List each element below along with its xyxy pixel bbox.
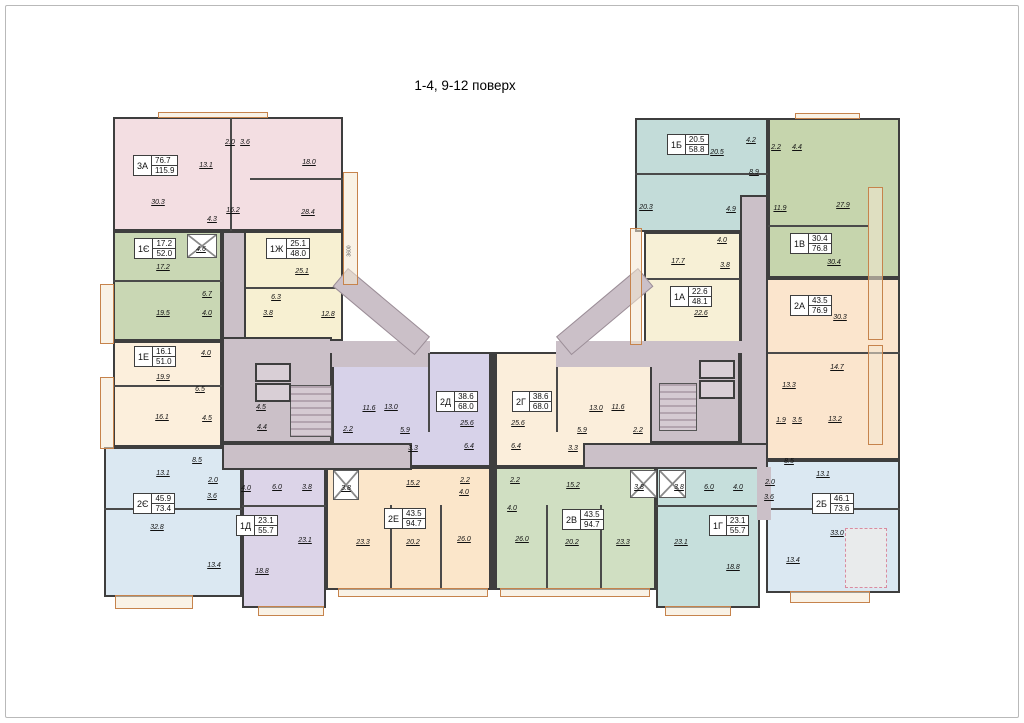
apartment-code: 1Б (668, 135, 686, 154)
corridor-band-right (583, 443, 768, 469)
apartment-label-1zh: 1Ж 25.148.0 (266, 238, 310, 259)
total-area: 115.9 (152, 166, 177, 175)
room-area-label: 2.0 (208, 477, 218, 485)
room-area-label: 14.7 (830, 364, 844, 372)
room-area-label: 20.2 (406, 539, 420, 547)
total-area: 52.0 (153, 249, 175, 258)
balcony (795, 113, 860, 119)
room-area-label: 23.1 (298, 537, 312, 545)
room-area-label: 6.4 (464, 443, 474, 451)
room-area-label: 3.8 (634, 484, 644, 492)
staircase-left (290, 385, 332, 437)
room-area-label: 27.9 (836, 202, 850, 210)
room-area-label: 13.1 (816, 471, 830, 479)
elevator-shaft (699, 360, 735, 379)
apartment-code: 2А (791, 296, 809, 315)
floor-plan: 1-4, 9-12 поверх (0, 0, 1024, 723)
total-area: 68.0 (455, 402, 477, 411)
room-area-label: 3.8 (302, 484, 312, 492)
room-area-label: 33.0 (830, 530, 844, 538)
apartment-label-1b: 1Б 20.558.8 (667, 134, 709, 155)
corridor-entry-left (222, 231, 246, 343)
room-area-label: 4.0 (201, 350, 211, 358)
room-area-label: 13.3 (782, 382, 796, 390)
apartment-label-1d: 1Д 23.155.7 (236, 515, 278, 536)
balcony (868, 345, 883, 445)
room-area-label: 5.9 (577, 427, 587, 435)
room-area-label: 4.0 (507, 505, 517, 513)
balcony (115, 595, 193, 609)
living-area: 23.1 (727, 516, 749, 526)
room-area-label: 6.0 (272, 484, 282, 492)
living-area: 45.9 (152, 494, 174, 504)
elevator-shaft (255, 383, 291, 402)
apartment-code: 1Г (710, 516, 727, 535)
balcony-dashed (845, 528, 887, 588)
total-area: 48.0 (287, 249, 309, 258)
total-area: 76.9 (809, 306, 831, 315)
room-area-label: 11.6 (611, 404, 624, 412)
total-area: 68.0 (530, 402, 552, 411)
room-area-label: 12.8 (321, 311, 335, 319)
balcony (868, 187, 883, 340)
partition-wall (768, 225, 868, 227)
apartment-label-2g: 2Г 38.668.0 (512, 391, 552, 412)
room-area-label: 23.3 (356, 539, 370, 547)
room-area-label: 30.3 (833, 314, 847, 322)
apartment-code: 1В (791, 234, 809, 253)
apartment-code: 3А (134, 156, 152, 175)
balcony (665, 606, 731, 616)
room-area-label: 30.4 (827, 259, 841, 267)
room-area-label: 3.3 (568, 445, 578, 453)
room-area-label: 3.8 (720, 262, 730, 270)
room-area-label: 5.9 (400, 427, 410, 435)
room-area-label: 4.9 (726, 206, 736, 214)
corridor-area-label: 4.5 (256, 404, 266, 412)
room-area-label: 23.1 (674, 539, 688, 547)
room-area-label: 8.5 (192, 457, 202, 465)
room-area-label: 13.4 (207, 562, 221, 570)
apartment-code: 2Є (134, 494, 152, 513)
room-area-label: 11.6 (362, 405, 375, 413)
partition-wall (113, 280, 222, 282)
apartment-label-3a: 3А 76.7115.9 (133, 155, 178, 176)
room-area-label: 17.7 (671, 258, 685, 266)
room-area-label: 4.4 (792, 144, 802, 152)
room-area-label: 6.3 (271, 294, 281, 302)
room-area-label: 13.0 (589, 405, 603, 413)
room-area-label: 6.4 (511, 443, 521, 451)
balcony (343, 172, 358, 285)
living-area: 43.5 (403, 509, 425, 519)
living-area: 17.2 (153, 239, 175, 249)
room-area-label: 4.0 (202, 310, 212, 318)
room-area-label: 3.8 (263, 310, 273, 318)
apartment-label-1v: 1В 30.476.8 (790, 233, 832, 254)
room-area-label: 3.8 (674, 484, 684, 492)
living-area: 38.6 (530, 392, 552, 402)
balcony (100, 377, 114, 449)
total-area: 58.8 (686, 145, 708, 154)
apartment-label-2b: 2Б 46.173.6 (812, 493, 854, 514)
room-area-label: 4.0 (733, 484, 743, 492)
room-area-label: 30.3 (151, 199, 165, 207)
living-area: 43.5 (581, 510, 603, 520)
room-area-label: 4.3 (207, 216, 217, 224)
apartment-label-1g: 1Г 23.155.7 (709, 515, 749, 536)
room-area-label: 8.5 (784, 458, 794, 466)
apartment-code: 2Г (513, 392, 530, 411)
room-area-label: 13.1 (199, 162, 213, 170)
room-area-label: 3.6 (207, 493, 217, 501)
room-area-label: 13.2 (828, 416, 842, 424)
total-area: 51.0 (153, 357, 175, 366)
room-area-label: 6.0 (704, 484, 714, 492)
room-area-label: 18.8 (255, 568, 269, 576)
staircase-right (659, 383, 697, 431)
room-area-label: 16.1 (155, 414, 169, 422)
elevator-shaft (699, 380, 735, 399)
room-area-label: 13.0 (384, 404, 398, 412)
balcony (100, 284, 114, 344)
dimension-label: 3600 (347, 245, 353, 256)
room-area-label: 6.5 (195, 386, 205, 394)
total-area: 73.4 (152, 504, 174, 513)
total-area: 76.8 (809, 244, 831, 253)
room-area-label: 3.6 (240, 139, 250, 147)
living-area: 16.1 (153, 347, 175, 357)
balcony (630, 228, 642, 345)
room-area-label: 4.0 (459, 489, 469, 497)
corridor-area-label: 4.4 (257, 424, 267, 432)
living-area: 46.1 (831, 494, 853, 504)
apartment-label-2a: 2А 43.576.9 (790, 295, 832, 316)
balcony (790, 591, 870, 603)
partition-wall (242, 505, 326, 507)
apartment-label-1a: 1А 22.648.1 (670, 286, 712, 307)
room-area-label: 20.5 (710, 149, 724, 157)
living-area: 20.5 (686, 135, 708, 145)
apartment-label-2d: 2Д 38.668.0 (436, 391, 478, 412)
apartment-code: 1Е (135, 347, 153, 366)
corridor-band-left (222, 443, 412, 470)
room-area-label: 4.2 (746, 137, 756, 145)
apartment-label-2ye: 2Є 45.973.4 (133, 493, 175, 514)
apartment-code: 2Б (813, 494, 831, 513)
room-area-label: 26.0 (515, 536, 529, 544)
room-area-label: 22.6 (694, 310, 708, 318)
living-area: 43.5 (809, 296, 831, 306)
apartment-code: 2Е (385, 509, 403, 528)
room-area-label: 2.2 (510, 477, 520, 485)
room-area-label: 15.2 (406, 480, 420, 488)
room-area-label: 3.3 (408, 445, 418, 453)
apartment-code: 2В (563, 510, 581, 529)
room-area-label: 4.5 (202, 415, 212, 423)
apartment-label-1ye: 1Є 17.252.0 (134, 238, 176, 259)
partition-wall (656, 505, 760, 507)
apartment-code: 1А (671, 287, 689, 306)
total-area: 94.7 (403, 519, 425, 528)
living-area: 30.4 (809, 234, 831, 244)
room-area-label: 28.4 (301, 209, 315, 217)
balcony (338, 588, 488, 597)
room-area-label: 8.9 (749, 169, 759, 177)
apartment-code: 1Д (237, 516, 255, 535)
living-area: 76.7 (152, 156, 177, 166)
room-area-label: 4.0 (241, 485, 251, 493)
total-area: 73.6 (831, 504, 853, 513)
room-area-label: 13.1 (156, 470, 170, 478)
room-area-label: 25.6 (460, 420, 474, 428)
total-area: 48.1 (689, 297, 711, 306)
room-area-label: 26.0 (457, 536, 471, 544)
room-area-label: 11.9 (773, 205, 786, 213)
room-area-label: 25.6 (511, 420, 525, 428)
partition-wall (644, 278, 741, 280)
balcony (258, 606, 324, 616)
room-area-label: 15.2 (566, 482, 580, 490)
apartment-label-2e: 2Е 43.594.7 (384, 508, 426, 529)
room-area-label: 6.7 (202, 291, 212, 299)
room-area-label: 23.3 (616, 539, 630, 547)
balcony (500, 588, 650, 597)
apartment-label-2v: 2В 43.594.7 (562, 509, 604, 530)
partition-wall (635, 173, 768, 175)
apartment-code: 1Є (135, 239, 153, 258)
apartment-label-1e: 1Е 16.151.0 (134, 346, 176, 367)
total-area: 94.7 (581, 520, 603, 529)
room-area-label: 19.5 (156, 310, 170, 318)
plan-title: 1-4, 9-12 поверх (355, 78, 575, 93)
apartment-code: 2Д (437, 392, 455, 411)
elevator-shaft (255, 363, 291, 382)
partition-wall (113, 385, 222, 387)
total-area: 55.7 (727, 526, 749, 535)
room-area-label: 3.6 (764, 494, 774, 502)
room-area-label: 17.2 (156, 264, 170, 272)
room-area-label: 20.3 (639, 204, 653, 212)
living-area: 25.1 (287, 239, 309, 249)
room-area-label: 3.5 (792, 417, 802, 425)
room-area-label: 13.4 (786, 557, 800, 565)
room-area-label: 3.8 (341, 485, 351, 493)
partition-wall (428, 352, 430, 432)
room-area-label: 25.1 (295, 268, 309, 276)
partition-wall (250, 178, 343, 180)
total-area: 55.7 (255, 526, 277, 535)
room-area-label: 18.0 (302, 159, 316, 167)
room-area-label: 4.0 (717, 237, 727, 245)
partition-wall (244, 287, 343, 289)
living-area: 22.6 (689, 287, 711, 297)
party-wall-center (489, 352, 497, 590)
room-area-label: 4.6 (196, 246, 206, 254)
room-area-label: 2.0 (765, 479, 775, 487)
corridor-entry-right (740, 195, 768, 463)
room-area-label: 2.2 (771, 144, 781, 152)
living-area: 23.1 (255, 516, 277, 526)
living-area: 38.6 (455, 392, 477, 402)
room-area-label: 2.2 (343, 426, 353, 434)
balcony (158, 112, 268, 118)
room-area-label: 19.9 (156, 374, 170, 382)
partition-wall (546, 505, 548, 590)
room-area-label: 20.2 (565, 539, 579, 547)
apartment-region-1d (242, 467, 326, 608)
room-area-label: 32.8 (150, 524, 164, 532)
room-area-label: 16.2 (226, 207, 240, 215)
room-area-label: 18.8 (726, 564, 740, 572)
partition-wall (440, 505, 442, 590)
apartment-code: 1Ж (267, 239, 287, 258)
room-area-label: 1.9 (776, 417, 786, 425)
room-area-label: 2.2 (633, 427, 643, 435)
room-area-label: 2.2 (460, 477, 470, 485)
room-area-label: 2.0 (225, 139, 235, 147)
